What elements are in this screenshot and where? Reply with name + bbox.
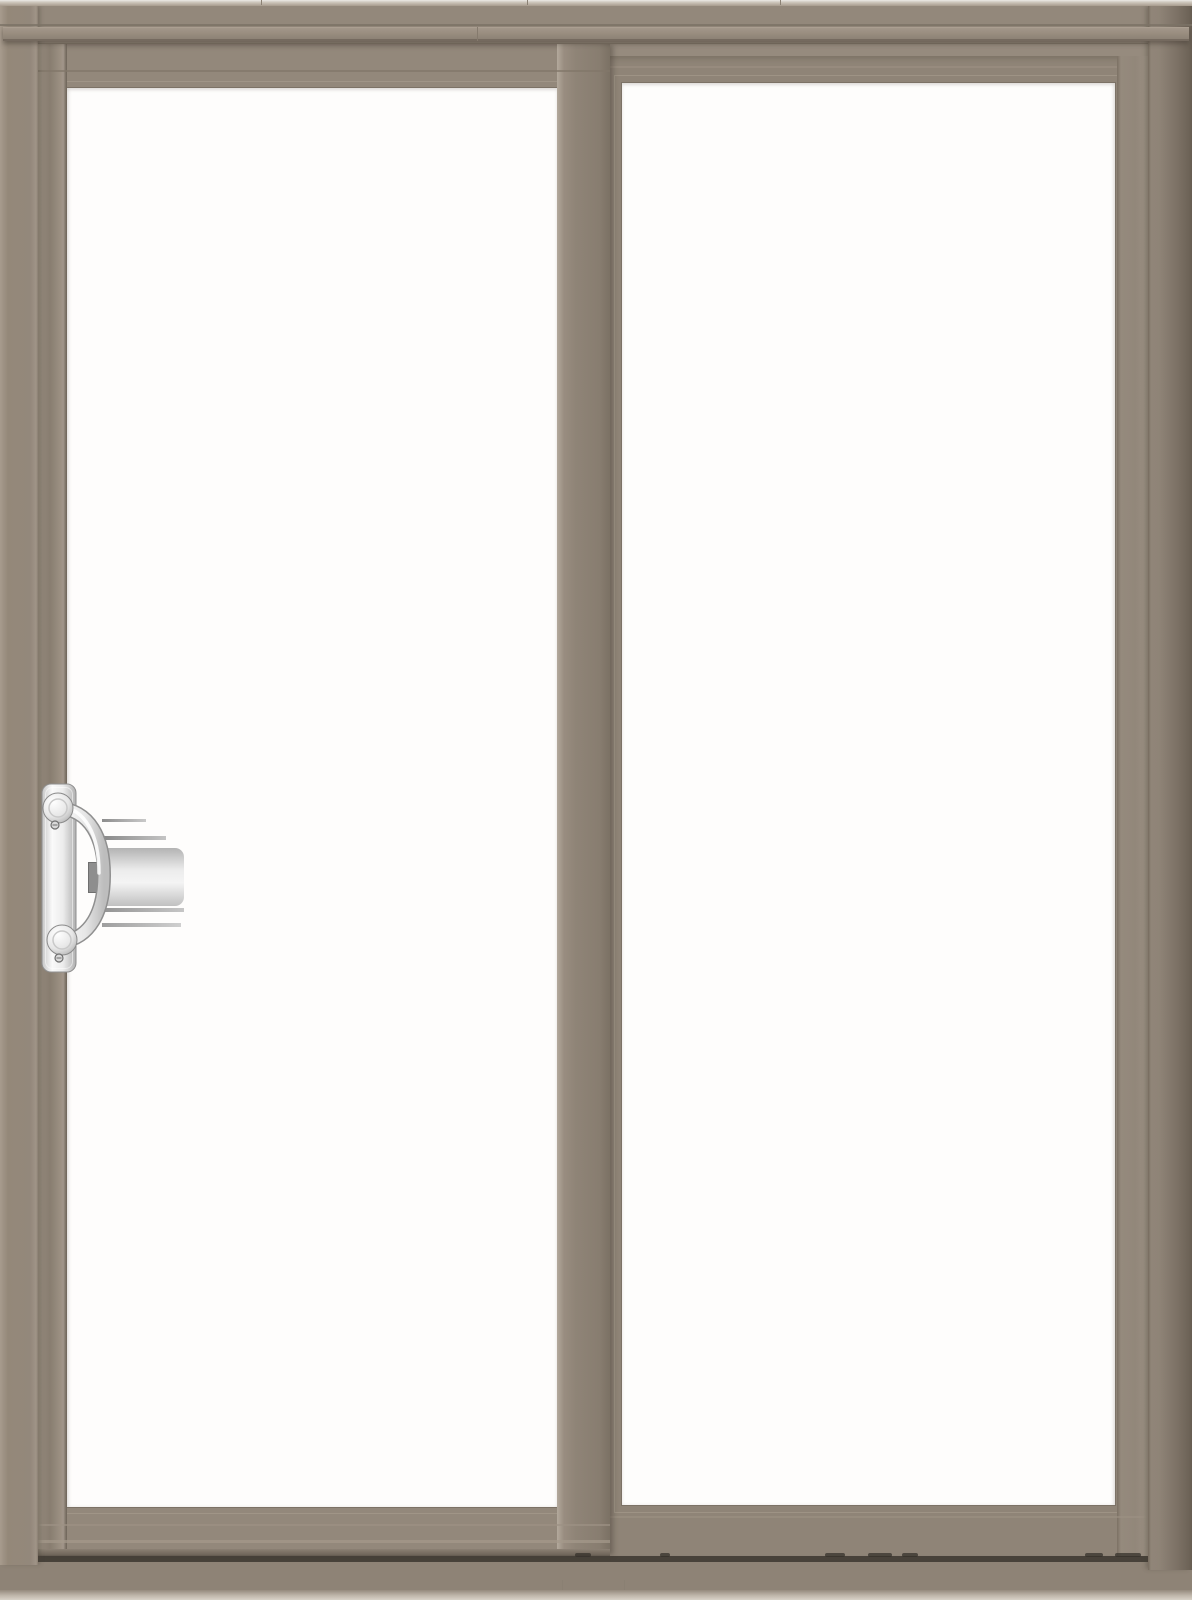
sliding-patio-door xyxy=(0,0,1192,1600)
head-top-edge xyxy=(0,0,1192,6)
fixed-panel-right-stile xyxy=(1117,56,1148,1556)
fixed-panel-bottom-rail-line xyxy=(585,1516,1150,1518)
sliding-panel-bottom-rail-line xyxy=(36,1524,610,1526)
fixed-panel-top-seam xyxy=(585,66,1150,68)
sliding-panel-glass xyxy=(67,88,557,1507)
sliding-panel-bottom-rail-line xyxy=(36,1540,610,1543)
weep-slot xyxy=(1085,1553,1103,1557)
weep-slot xyxy=(575,1553,591,1557)
handle-reflection-streak xyxy=(102,836,166,840)
weep-slot xyxy=(868,1553,892,1557)
handle-reflection-streak xyxy=(102,923,181,927)
head-edge-seam xyxy=(527,0,528,5)
handle-reflection-block xyxy=(102,848,184,906)
head-trim-joint xyxy=(477,27,478,41)
sliding-panel-bottom-edge xyxy=(36,1549,610,1556)
head-trim xyxy=(3,27,1189,41)
sliding-panel-meeting-stile xyxy=(557,44,610,1556)
sill-bottom-edge xyxy=(0,1590,1192,1600)
door-handle xyxy=(38,780,110,980)
weep-slot xyxy=(660,1553,670,1557)
handle-reflection-streak xyxy=(102,908,184,912)
head-edge-seam xyxy=(780,0,781,5)
right-jamb xyxy=(1148,5,1192,1570)
sliding-panel-top-seam xyxy=(36,70,610,72)
weep-slot xyxy=(825,1553,845,1557)
weep-slot xyxy=(902,1553,918,1557)
weep-slot xyxy=(1115,1553,1141,1557)
left-jamb xyxy=(0,5,38,1565)
fixed-panel-glass xyxy=(622,83,1115,1505)
sill xyxy=(0,1562,1192,1592)
head-frame-seam xyxy=(0,24,1192,26)
head-edge-seam xyxy=(261,0,262,5)
